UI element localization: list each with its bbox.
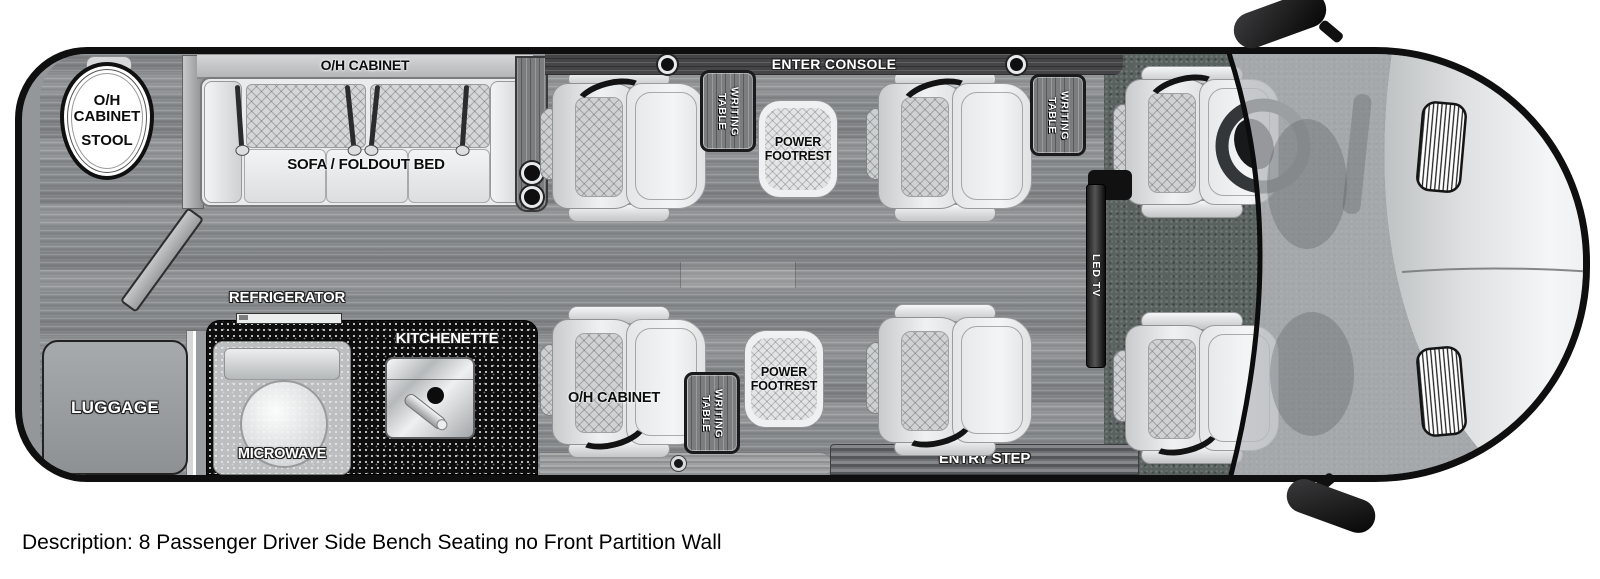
floorplan-description: Description: 8 Passenger Driver Side Ben… (22, 531, 722, 555)
rear-cabinet-label: O/H CABINET (74, 93, 141, 125)
sofa-label: SOFA / FOLDOUT BED (202, 157, 530, 174)
van-body: O/H CABINET STOOL O/H CABINET SOFA / FOL… (15, 47, 1590, 482)
refrigerator (236, 313, 342, 324)
writing-table-label: WRITING TABLE (1045, 91, 1070, 140)
sofa-overhead-cabinet-label: O/H CABINET (321, 58, 410, 74)
cupholder (658, 55, 677, 74)
writing-table-label: WRITING TABLE (715, 87, 740, 136)
mirror-arm (1318, 19, 1345, 44)
stool-label: STOOL (81, 132, 132, 149)
center-console-rail: ENTER CONSOLE (545, 54, 1123, 75)
microwave: MICROWAVE (213, 341, 351, 475)
power-footrest-label: POWER FOOTREST (751, 365, 817, 393)
passenger-seat-1 (540, 70, 708, 222)
writing-table: WRITING TABLE (1030, 74, 1086, 156)
sofa-overhead-cabinet: O/H CABINET (197, 55, 533, 79)
side-mirror-driver (1229, 0, 1332, 53)
power-footrest-label: POWER FOOTREST (765, 135, 831, 163)
power-footrest: POWER FOOTREST (758, 100, 838, 198)
power-footrest: POWER FOOTREST (744, 330, 824, 428)
speaker-icon (671, 456, 686, 471)
passenger-seat-3 (540, 306, 708, 458)
kitchenette-counter: KITCHENETTE MICROWAVE (206, 320, 538, 475)
galley-wall (186, 330, 208, 477)
center-console-label: ENTER CONSOLE (772, 57, 896, 73)
front-passenger-seat (1113, 312, 1281, 464)
sofa-foldout-bed: SOFA / FOLDOUT BED (200, 77, 532, 207)
rv-floorplan: O/H CABINET STOOL O/H CABINET SOFA / FOL… (0, 0, 1600, 579)
kitchen-sink (385, 357, 475, 439)
luggage-compartment: LUGGAGE (42, 340, 188, 475)
microwave-panel (224, 348, 340, 380)
luggage-label: LUGGAGE (71, 398, 159, 417)
led-tv-label: LED TV (1090, 254, 1102, 297)
floor-plank-detail (680, 262, 796, 288)
cupholder (1007, 55, 1026, 74)
writing-table: WRITING TABLE (684, 372, 740, 454)
driver-seat (1113, 66, 1281, 218)
passenger-seat-2 (866, 70, 1034, 222)
writing-table-label: WRITING TABLE (699, 389, 724, 438)
microwave-label: MICROWAVE (214, 446, 350, 462)
sink-drain (427, 387, 444, 404)
led-tv: LED TV (1086, 184, 1106, 368)
refrigerator-label: REFRIGERATOR (172, 290, 402, 307)
kitchenette-label: KITCHENETTE (357, 331, 537, 348)
writing-table: WRITING TABLE (700, 70, 756, 152)
passenger-seat-4 (866, 304, 1034, 456)
lower-overhead-cabinet-label: O/H CABINET (558, 390, 670, 406)
sofa-backrest (370, 84, 490, 148)
